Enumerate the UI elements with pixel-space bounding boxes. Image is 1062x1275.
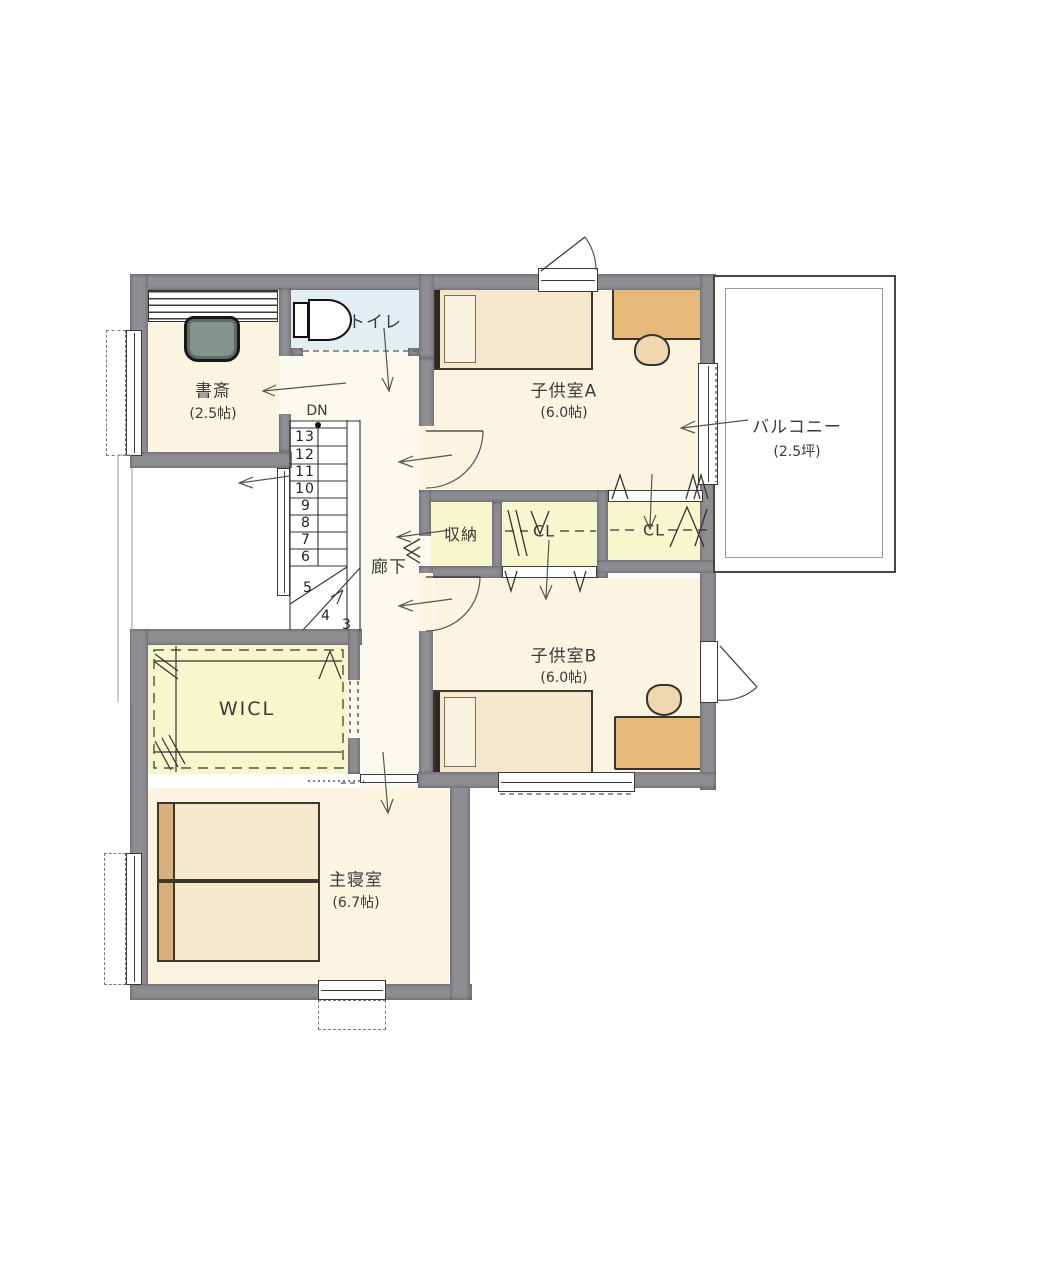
stair-step-13: 13	[295, 429, 315, 445]
room-label-kids-a: 子供室A	[531, 377, 598, 402]
floor-plan: 書斎 (2.5帖) トイレ 子供室A (6.0帖) バルコニー (2.5坪) 収…	[0, 0, 1062, 1275]
stair-step-11: 11	[295, 464, 315, 480]
stair-step-5: 5	[303, 580, 313, 596]
stair-step-4: 4	[321, 608, 331, 624]
room-label-storage: 収納	[444, 521, 478, 545]
room-area-master: (6.7帖)	[332, 892, 379, 912]
room-label-master: 主寝室	[329, 866, 383, 891]
room-label-closet-a: CL	[533, 522, 555, 541]
room-label-balcony: バルコニー	[752, 413, 842, 438]
room-area-kids-a: (6.0帖)	[540, 402, 587, 422]
opening-arrows	[239, 328, 748, 813]
room-label-closet-b: CL	[643, 521, 665, 540]
stair-step-10: 10	[295, 481, 315, 497]
room-label-kids-b: 子供室B	[531, 642, 598, 667]
plan-linework	[0, 0, 1062, 1275]
door-arcs	[426, 237, 757, 700]
room-label-wicl: WICL	[219, 698, 275, 720]
stair-step-8: 8	[301, 515, 311, 531]
room-area-study: (2.5帖)	[189, 403, 236, 423]
room-label-toilet: トイレ	[348, 308, 402, 333]
room-label-study: 書斎	[195, 377, 231, 402]
stairs-direction-label: DN	[306, 403, 327, 419]
room-label-hallway: 廊下	[371, 553, 407, 578]
stair-step-6: 6	[301, 549, 311, 565]
stair-step-3: 3	[342, 617, 352, 633]
stair-step-9: 9	[301, 498, 311, 514]
stair-step-12: 12	[295, 447, 315, 463]
room-area-balcony: (2.5坪)	[773, 441, 820, 461]
room-area-kids-b: (6.0帖)	[540, 667, 587, 687]
stair-step-7: 7	[301, 532, 311, 548]
